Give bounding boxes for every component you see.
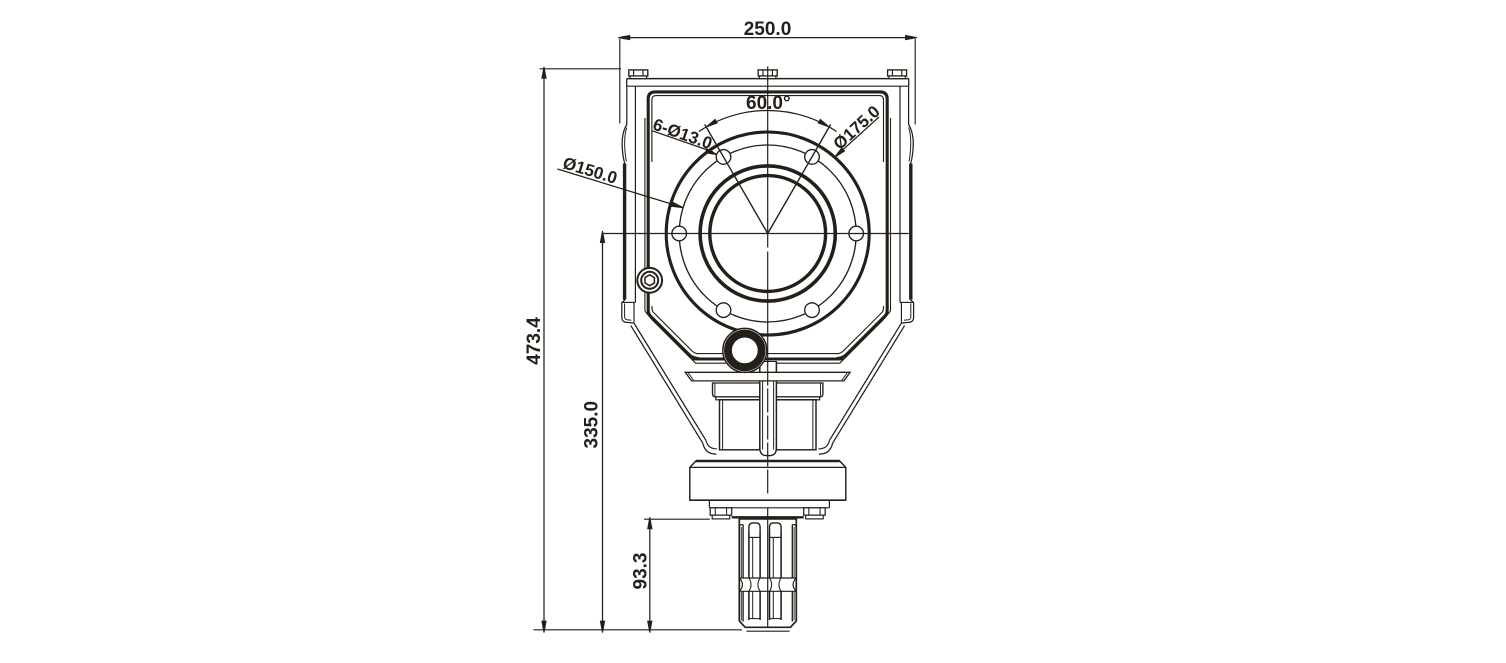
svg-text:335.0: 335.0 — [581, 401, 602, 449]
svg-text:93.3: 93.3 — [630, 553, 651, 590]
svg-text:473.4: 473.4 — [524, 317, 545, 365]
svg-text:250.0: 250.0 — [744, 19, 792, 40]
